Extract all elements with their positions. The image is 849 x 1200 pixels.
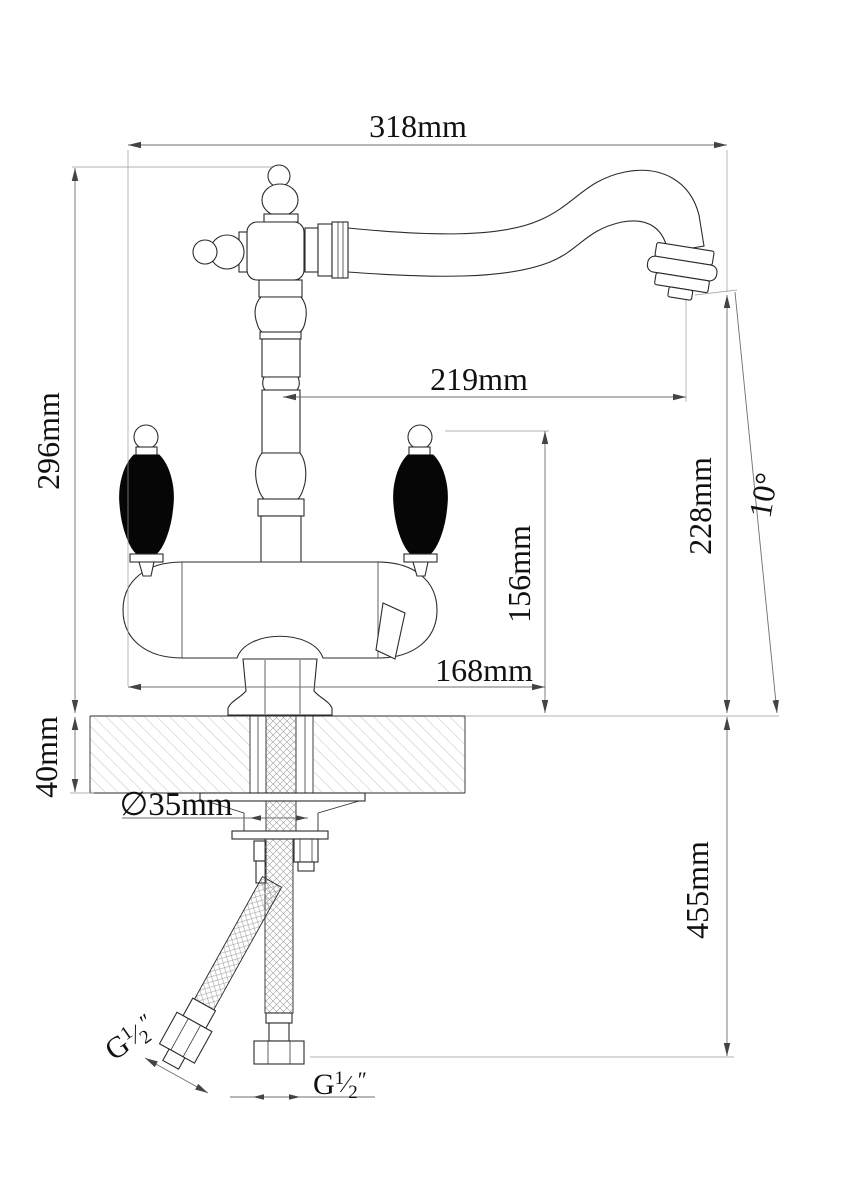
mounting-shank [250,716,313,793]
knob-ball-small [193,240,217,264]
countertop-hatch-left [90,717,250,792]
label-deck-thickness: 40mm [28,716,64,798]
right-handle-grip [394,455,448,554]
right-handle-collar-top [409,447,430,455]
column-neck [259,280,302,297]
left-knob [193,232,247,272]
connector-ring [318,224,332,276]
label-hole-diameter: ∅35mm [119,787,232,823]
vertical-hose-neck [269,1023,289,1041]
label-spout-reach: 219mm [430,361,528,397]
label-spout-angle: 10° [742,470,785,520]
right-connector-tip [298,862,314,871]
right-handle [394,425,448,576]
column-collar-1 [260,332,301,339]
right-connector-hex [294,839,318,862]
faucet-technical-drawing: 318mm 219mm 296mm 228mm 10° 156mm 168mm … [0,0,849,1200]
label-thread-bottom: G1⁄2″ [313,1067,367,1103]
column-cylinder-3 [261,516,301,564]
vertical-hose-nut [254,1041,304,1064]
column-collar-2 [258,499,304,516]
faucet-body [120,165,721,715]
connector-ring [305,228,318,272]
locking-washer [232,831,328,839]
column-vase-lower [256,453,306,499]
label-body-width: 168mm [435,652,533,688]
label-thread-left: G1⁄2″ [98,1008,163,1068]
right-handle-collar-bottom [404,554,437,562]
column-taper [263,377,300,390]
label-body-height: 296mm [30,392,66,490]
thread-denominator: 2 [348,1082,358,1103]
shank-hose-braid [266,716,296,793]
label-outlet-height: 228mm [682,457,718,555]
dim-arrow-35-left [250,815,261,821]
column-vase-upper [255,297,306,332]
finial-large-ball [262,184,298,216]
thread-numerator: 1 [335,1068,345,1089]
column [255,280,306,564]
left-handle-collar-bottom [130,554,163,562]
left-handle-ball [134,425,158,449]
countertop-hatch-right [314,717,465,792]
label-overall-width: 318mm [369,108,467,144]
right-handle-ball [408,425,432,449]
spout-connector [305,222,348,278]
column-cylinder-2 [262,390,300,453]
dim-arrow-35-right [296,815,307,821]
vertical-hose-ferrule [266,1013,292,1023]
top-finial [262,165,298,222]
label-hose-length: 455mm [679,841,715,939]
column-cylinder-1 [262,339,300,377]
thread-prefix: G [313,1068,335,1101]
label-handle-height: 156mm [501,525,537,623]
connector-ring [332,222,348,278]
dim-arrow-thread-right [289,1094,300,1100]
dim-arrow-thread-left [253,1094,264,1100]
flare-right [318,801,359,813]
shank-hose-braid-lower [266,801,296,831]
aerator [643,241,720,303]
left-handle-collar-top [136,447,157,455]
valve-block [247,222,304,280]
vertical-hose-braid [265,839,293,1013]
finial-collar [264,214,298,222]
hose-collar-upper [254,841,266,861]
thread-unit: ″ [358,1067,367,1092]
